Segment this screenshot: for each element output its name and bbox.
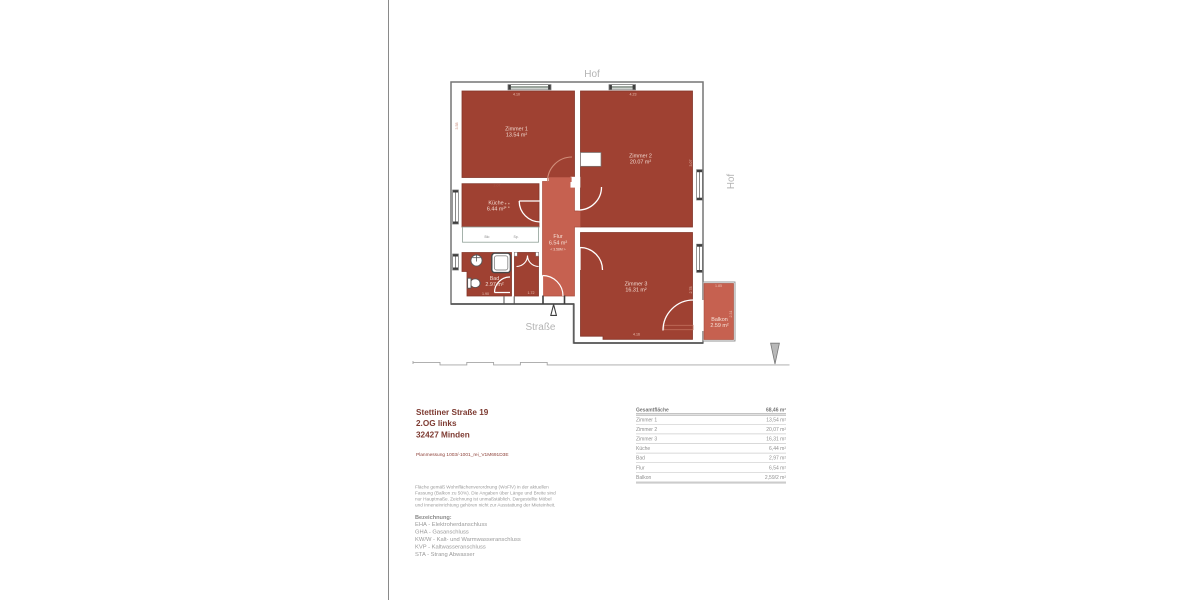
svg-text:2.97 m²: 2.97 m² — [485, 282, 503, 288]
svg-text:Küche: Küche — [636, 446, 650, 452]
svg-text:Zimmer 3: Zimmer 3 — [636, 437, 657, 443]
svg-text:13,54 m²: 13,54 m² — [766, 417, 786, 423]
svg-text:Hof: Hof — [726, 174, 737, 190]
svg-text:1.90: 1.90 — [482, 292, 489, 296]
svg-text:68,46 m²: 68,46 m² — [766, 407, 786, 413]
svg-text:Flur: Flur — [636, 465, 645, 471]
svg-text:6,44 m²: 6,44 m² — [769, 446, 786, 452]
svg-text:Fläche gemäß Wohnflächenverord: Fläche gemäß Wohnflächenverordnung (WoFl… — [415, 485, 549, 490]
svg-text:Hof: Hof — [584, 69, 600, 80]
svg-text:Bezeichnung:: Bezeichnung: — [415, 515, 452, 521]
svg-text:3.58: 3.58 — [455, 123, 459, 130]
svg-text:Zimmer 1: Zimmer 1 — [636, 417, 657, 423]
svg-text:6,54 m²: 6,54 m² — [769, 465, 786, 471]
svg-text:20,07 m²: 20,07 m² — [766, 427, 786, 433]
svg-text:Flur: Flur — [553, 234, 562, 240]
svg-text:2,59/2 m²: 2,59/2 m² — [765, 475, 786, 481]
svg-text:GHA - Gasanschluss: GHA - Gasanschluss — [415, 529, 469, 535]
svg-text:KVP - Kaltwasseranschluss: KVP - Kaltwasseranschluss — [415, 544, 486, 550]
svg-text:4.16: 4.16 — [633, 333, 640, 337]
svg-text:und Inneneinrichtung gehören n: und Inneneinrichtung gehören nicht zur A… — [415, 503, 555, 508]
svg-text:< 3.58M >: < 3.58M > — [550, 248, 565, 252]
svg-text:KW/W - Kalt- und Warmwasserans: KW/W - Kalt- und Warmwasseranschluss — [415, 537, 521, 543]
svg-text:2.07: 2.07 — [494, 183, 501, 187]
svg-text:Blo: Blo — [485, 235, 490, 239]
svg-text:2,97 m²: 2,97 m² — [769, 456, 786, 462]
svg-text:4.23: 4.23 — [630, 93, 637, 97]
svg-text:Stettiner Straße 19: Stettiner Straße 19 — [416, 408, 489, 417]
svg-text:EHA - Elektroherdanschluss: EHA - Elektroherdanschluss — [415, 522, 487, 528]
svg-text:16.31 m²: 16.31 m² — [625, 288, 646, 294]
svg-text:STA - Strang Abwasser: STA - Strang Abwasser — [415, 552, 475, 558]
svg-text:3.07: 3.07 — [689, 160, 693, 167]
svg-text:6.54 m²: 6.54 m² — [549, 241, 567, 247]
svg-text:2.59 m²: 2.59 m² — [710, 323, 728, 329]
svg-text:2.31: 2.31 — [729, 311, 733, 318]
svg-text:nur Hauptmaße. Zeichnung ist u: nur Hauptmaße. Zeichnung ist unmaßstäbli… — [415, 497, 552, 502]
svg-text:Gesamtfläche: Gesamtfläche — [636, 407, 669, 413]
svg-text:Balkon: Balkon — [636, 475, 652, 481]
svg-text:6.44 m²: 6.44 m² — [487, 207, 505, 213]
svg-text:2.78: 2.78 — [689, 287, 693, 294]
svg-text:2.OG links: 2.OG links — [416, 419, 457, 428]
svg-text:16,31 m²: 16,31 m² — [766, 437, 786, 443]
svg-text:Sp.: Sp. — [513, 235, 518, 239]
svg-text:Bad: Bad — [636, 456, 645, 462]
svg-text:4.10: 4.10 — [513, 93, 520, 97]
svg-text:Fassung (Balkon zu 50%). Die A: Fassung (Balkon zu 50%). Die Angaben übe… — [415, 491, 556, 496]
svg-text:1.72: 1.72 — [528, 291, 535, 295]
svg-text:13.54 m²: 13.54 m² — [506, 133, 527, 139]
svg-text:32427 Minden: 32427 Minden — [416, 431, 470, 440]
svg-text:Planmessung 1003/-1001_rei_V1M: Planmessung 1003/-1001_rei_V1M691D3E — [416, 452, 509, 458]
svg-text:Straße: Straße — [525, 322, 555, 333]
svg-text:20.07 m²: 20.07 m² — [630, 160, 651, 166]
svg-text:1.85: 1.85 — [715, 284, 722, 288]
svg-text:Zimmer 2: Zimmer 2 — [636, 427, 657, 433]
